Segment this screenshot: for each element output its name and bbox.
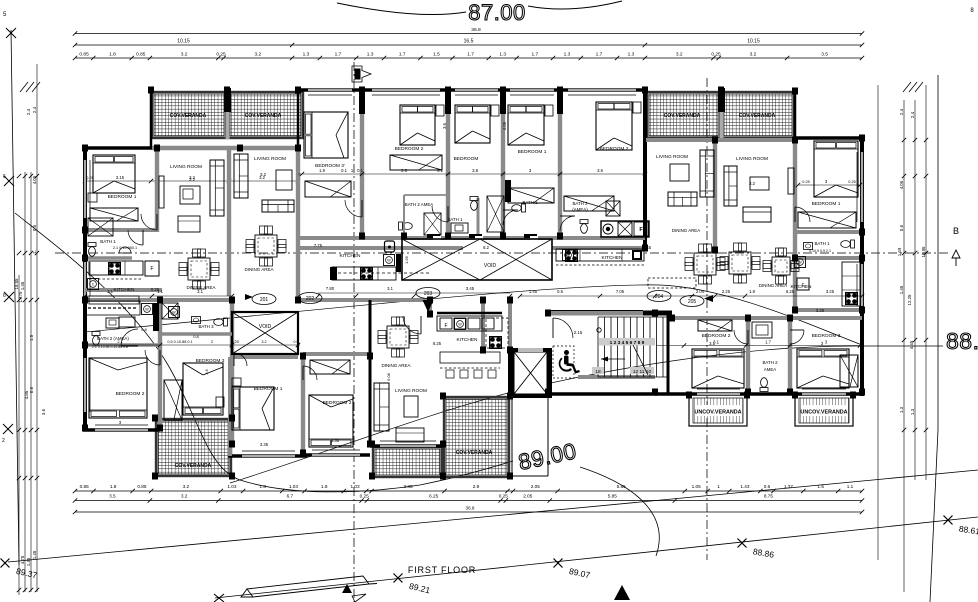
svg-text:4.75: 4.75: [20, 555, 25, 564]
svg-text:1.7: 1.7: [335, 52, 342, 58]
svg-text:1.8: 1.8: [109, 52, 116, 58]
svg-text:3.2: 3.2: [676, 52, 683, 58]
svg-text:C: C: [92, 283, 95, 287]
svg-text:0.25: 0.25: [848, 180, 855, 184]
svg-text:6.08: 6.08: [386, 372, 391, 381]
svg-text:0.10.9 0.9 2.1: 0.10.9 0.9 2.1: [809, 249, 831, 253]
svg-text:VOID: VOID: [484, 263, 497, 269]
svg-text:1.95: 1.95: [404, 255, 409, 264]
svg-text:COV.VERANDA: COV.VERANDA: [739, 113, 776, 119]
svg-text:1.1: 1.1: [847, 484, 854, 489]
svg-text:1.45: 1.45: [529, 289, 538, 294]
svg-text:W: W: [566, 254, 570, 258]
svg-text:3.1: 3.1: [709, 341, 715, 346]
svg-text:18: 18: [595, 369, 601, 375]
svg-text:BEDROOM 3: BEDROOM 3: [812, 333, 841, 339]
svg-text:BATH 2: BATH 2: [572, 201, 588, 206]
svg-text:3.5: 3.5: [821, 52, 828, 58]
svg-text:COV.VERANDA: COV.VERANDA: [664, 113, 701, 119]
svg-text:1.03: 1.03: [227, 484, 237, 489]
svg-text:3.2: 3.2: [254, 52, 261, 58]
svg-text:BEDROOM: BEDROOM: [454, 156, 479, 162]
svg-text:KITCHEN: KITCHEN: [601, 255, 623, 261]
svg-text:1.69: 1.69: [897, 247, 902, 256]
svg-text:VOID: VOID: [259, 324, 272, 330]
svg-text:2.25: 2.25: [722, 289, 731, 294]
svg-text:2.4: 2.4: [910, 111, 915, 118]
svg-text:6.7: 6.7: [287, 494, 294, 499]
svg-text:LIVING ROOM: LIVING ROOM: [254, 156, 286, 162]
svg-text:0.25: 0.25: [802, 180, 809, 184]
svg-text:3.2: 3.2: [750, 52, 757, 58]
svg-text:2.15: 2.15: [574, 330, 583, 335]
svg-text:2: 2: [2, 438, 5, 444]
svg-text:COV.VERANDA: COV.VERANDA: [175, 463, 212, 469]
svg-text:2.04: 2.04: [696, 289, 705, 294]
svg-text:6.25: 6.25: [786, 289, 795, 294]
svg-text:BATH 1: BATH 1: [100, 239, 116, 244]
svg-text:DINING AREA: DINING AREA: [244, 267, 273, 272]
svg-text:0.85: 0.85: [79, 52, 89, 58]
svg-text:LIVING ROOM: LIVING ROOM: [170, 164, 202, 170]
svg-text:0.6: 0.6: [29, 386, 34, 393]
svg-text:12 11 10: 12 11 10: [633, 369, 652, 375]
svg-text:3.45: 3.45: [466, 286, 475, 291]
svg-text:3.35: 3.35: [260, 442, 269, 447]
svg-text:10.15: 10.15: [177, 39, 190, 45]
svg-text:1.43: 1.43: [740, 484, 750, 489]
svg-text:1.8: 1.8: [259, 484, 266, 489]
svg-text:3.35: 3.35: [403, 484, 413, 489]
svg-text:W: W: [798, 261, 802, 265]
svg-text:203: 203: [424, 291, 433, 297]
svg-text:1.3: 1.3: [910, 408, 915, 415]
svg-text:DINING AREA: DINING AREA: [759, 283, 787, 288]
svg-text:201: 201: [260, 297, 269, 303]
svg-text:87.00: 87.00: [468, 0, 526, 25]
svg-text:2.9: 2.9: [473, 484, 480, 489]
svg-text:1.7: 1.7: [467, 52, 474, 58]
svg-text:1.45: 1.45: [26, 557, 31, 566]
svg-text:4.05: 4.05: [502, 121, 507, 130]
svg-text:2.1 0.10.950.1: 2.1 0.10.950.1: [113, 246, 137, 250]
svg-text:0.6: 0.6: [764, 484, 771, 489]
svg-text:1.5: 1.5: [433, 52, 440, 58]
svg-text:0.85: 0.85: [80, 484, 90, 489]
svg-text:BATH 3: BATH 3: [198, 324, 214, 329]
svg-text:3.2: 3.2: [260, 172, 267, 177]
svg-text:1.03: 1.03: [350, 484, 360, 489]
svg-text:BEDROOM 1: BEDROOM 1: [254, 386, 283, 392]
svg-text:0.25: 0.25: [360, 494, 370, 499]
svg-text:3.2: 3.2: [181, 52, 188, 58]
svg-text:3.6: 3.6: [442, 122, 447, 128]
svg-text:2.4: 2.4: [26, 108, 31, 115]
svg-text:BEDROOM 2: BEDROOM 2: [116, 391, 145, 397]
svg-text:0.8: 0.8: [141, 327, 147, 332]
svg-text:BATH 2 AMEA: BATH 2 AMEA: [405, 202, 434, 207]
svg-text:3.2: 3.2: [189, 177, 196, 182]
svg-text:3.8: 3.8: [472, 168, 478, 173]
svg-text:0.25: 0.25: [231, 340, 238, 344]
svg-text:1.45: 1.45: [20, 281, 25, 290]
svg-text:DINING AREA: DINING AREA: [672, 228, 700, 233]
svg-text:W: W: [145, 308, 149, 312]
svg-text:0.25: 0.25: [216, 52, 226, 58]
svg-text:COV.VERANDA: COV.VERANDA: [170, 113, 207, 119]
svg-text:BEDROOM 2: BEDROOM 2: [600, 146, 629, 152]
svg-text:0.85: 0.85: [137, 484, 147, 489]
svg-text:3.2: 3.2: [749, 181, 755, 186]
svg-text:16.5: 16.5: [464, 39, 474, 45]
svg-text:W: W: [387, 259, 391, 263]
svg-text:3.5: 3.5: [109, 494, 116, 499]
svg-text:7.05: 7.05: [616, 289, 625, 294]
svg-text:W: W: [172, 311, 176, 315]
svg-text:8.2: 8.2: [483, 245, 489, 250]
svg-text:0.8: 0.8: [193, 334, 199, 339]
svg-text:1.8: 1.8: [110, 484, 117, 489]
svg-text:1.3: 1.3: [367, 52, 374, 58]
svg-text:0.6: 0.6: [899, 224, 904, 231]
svg-text:1 2 3 4 5 6 7 8 9: 1 2 3 4 5 6 7 8 9: [610, 340, 645, 346]
svg-text:BATH 2 (AMEA): BATH 2 (AMEA): [97, 336, 129, 341]
svg-text:0.1: 0.1: [437, 168, 443, 173]
svg-text:2.4: 2.4: [899, 108, 904, 115]
svg-text:3.2: 3.2: [181, 494, 188, 499]
svg-text:3.6: 3.6: [41, 408, 46, 415]
svg-text:0.5: 0.5: [557, 289, 563, 294]
svg-text:3.2: 3.2: [183, 484, 190, 489]
svg-text:202: 202: [306, 296, 315, 302]
svg-text:2.05: 2.05: [523, 494, 533, 499]
svg-text:2.05: 2.05: [531, 484, 541, 489]
svg-text:205: 205: [688, 299, 697, 305]
svg-text:7.75: 7.75: [314, 243, 323, 248]
svg-text:DINING AREA: DINING AREA: [381, 363, 410, 368]
svg-text:BATH 1: BATH 1: [814, 241, 830, 246]
svg-text:F: F: [801, 283, 804, 289]
svg-text:AMEA: AMEA: [764, 367, 777, 372]
svg-text:5.85: 5.85: [608, 494, 618, 499]
svg-text:F: F: [444, 323, 447, 329]
svg-text:88.: 88.: [946, 328, 978, 354]
svg-text:1.7: 1.7: [399, 52, 406, 58]
svg-text:COV.VERANDA: COV.VERANDA: [456, 450, 493, 456]
svg-text:6.25: 6.25: [429, 494, 439, 499]
svg-text:1.1: 1.1: [157, 289, 163, 294]
svg-text:1: 1: [717, 484, 720, 489]
svg-text:1.45: 1.45: [32, 550, 37, 559]
svg-text:UNCOV.VERANDA: UNCOV.VERANDA: [800, 410, 847, 416]
svg-text:3.1: 3.1: [387, 286, 393, 291]
svg-text:BEDROOM 2: BEDROOM 2: [323, 400, 352, 406]
svg-text:0.85: 0.85: [136, 52, 146, 58]
svg-text:3.1: 3.1: [107, 289, 113, 294]
svg-text:BEDROOM 2: BEDROOM 2: [702, 333, 731, 339]
svg-text:2: 2: [211, 340, 213, 344]
svg-text:0.1: 0.1: [341, 168, 347, 173]
svg-text:0.1: 0.1: [357, 168, 363, 173]
svg-text:3.2: 3.2: [261, 340, 266, 344]
svg-text:BEDROOM 1: BEDROOM 1: [812, 201, 841, 207]
svg-text:BEDROOM 1: BEDROOM 1: [108, 194, 137, 200]
svg-text:KITCHEN: KITCHEN: [456, 337, 478, 343]
svg-text:1.05: 1.05: [692, 484, 702, 489]
svg-text:1.45: 1.45: [899, 285, 904, 294]
svg-text:0.5 0.10.88 0.1: 0.5 0.10.88 0.1: [167, 340, 192, 344]
svg-text:2.5: 2.5: [401, 168, 407, 173]
svg-text:15.95: 15.95: [921, 246, 926, 258]
svg-text:6.25: 6.25: [433, 341, 442, 346]
svg-text:1.8: 1.8: [749, 289, 755, 294]
svg-text:BEDROOM 1: BEDROOM 1: [518, 149, 547, 155]
svg-text:3.6: 3.6: [204, 368, 209, 374]
svg-text:UNCOV.VERANDA: UNCOV.VERANDA: [694, 410, 741, 416]
svg-text:0.25: 0.25: [711, 52, 721, 58]
svg-text:3.15: 3.15: [116, 175, 125, 180]
svg-text:1.7: 1.7: [596, 52, 603, 58]
svg-text:BATH 1: BATH 1: [447, 217, 463, 222]
svg-text:3.1: 3.1: [197, 289, 203, 294]
svg-text:0.25: 0.25: [499, 494, 509, 499]
svg-text:3.35: 3.35: [331, 438, 340, 443]
svg-text:4.06: 4.06: [899, 180, 904, 189]
svg-text:KITCHEN: KITCHEN: [113, 287, 135, 293]
svg-text:36.8: 36.8: [471, 27, 481, 33]
svg-text:W: W: [458, 323, 462, 327]
svg-text:LIVING ROOM: LIVING ROOM: [395, 388, 427, 394]
svg-text:LIVING ROOM: LIVING ROOM: [736, 156, 768, 162]
svg-text:12.25: 12.25: [907, 294, 912, 306]
svg-text:BATH 2: BATH 2: [762, 360, 778, 365]
svg-text:3.25: 3.25: [826, 289, 835, 294]
svg-text:LIVING ROOM: LIVING ROOM: [656, 154, 688, 160]
svg-text:1.7: 1.7: [531, 52, 538, 58]
svg-text:B: B: [953, 226, 959, 236]
svg-text:(AMEA): (AMEA): [572, 207, 588, 212]
svg-text:COV.VERANDA: COV.VERANDA: [245, 113, 282, 119]
svg-text:0.5: 0.5: [293, 340, 298, 344]
svg-text:1.7: 1.7: [765, 340, 771, 345]
svg-text:1.3: 1.3: [564, 52, 571, 58]
svg-text:1.8: 1.8: [321, 484, 328, 489]
svg-text:1.03: 1.03: [289, 484, 299, 489]
svg-text:1.3: 1.3: [303, 52, 310, 58]
svg-text:10.15: 10.15: [747, 39, 760, 45]
svg-text:1.9: 1.9: [319, 168, 325, 173]
svg-text:BEDROOM 3: BEDROOM 3: [196, 358, 225, 364]
svg-text:3.6: 3.6: [597, 168, 603, 173]
svg-text:1.3: 1.3: [499, 52, 506, 58]
svg-text:FIRST FLOOR: FIRST FLOOR: [408, 565, 476, 575]
svg-text:5.85: 5.85: [617, 484, 627, 489]
svg-text:1.3: 1.3: [899, 406, 904, 413]
svg-text:3.25: 3.25: [816, 308, 825, 313]
svg-text:1.3: 1.3: [628, 52, 635, 58]
svg-text:7.80: 7.80: [326, 286, 335, 291]
svg-text:2.4: 2.4: [32, 106, 37, 113]
svg-text:1.5: 1.5: [29, 334, 34, 341]
svg-text:8.75: 8.75: [764, 494, 774, 499]
svg-text:BEDROOM 2: BEDROOM 2: [395, 146, 424, 152]
svg-text:36.8: 36.8: [466, 506, 475, 511]
svg-text:KITCHEN: KITCHEN: [339, 253, 361, 259]
